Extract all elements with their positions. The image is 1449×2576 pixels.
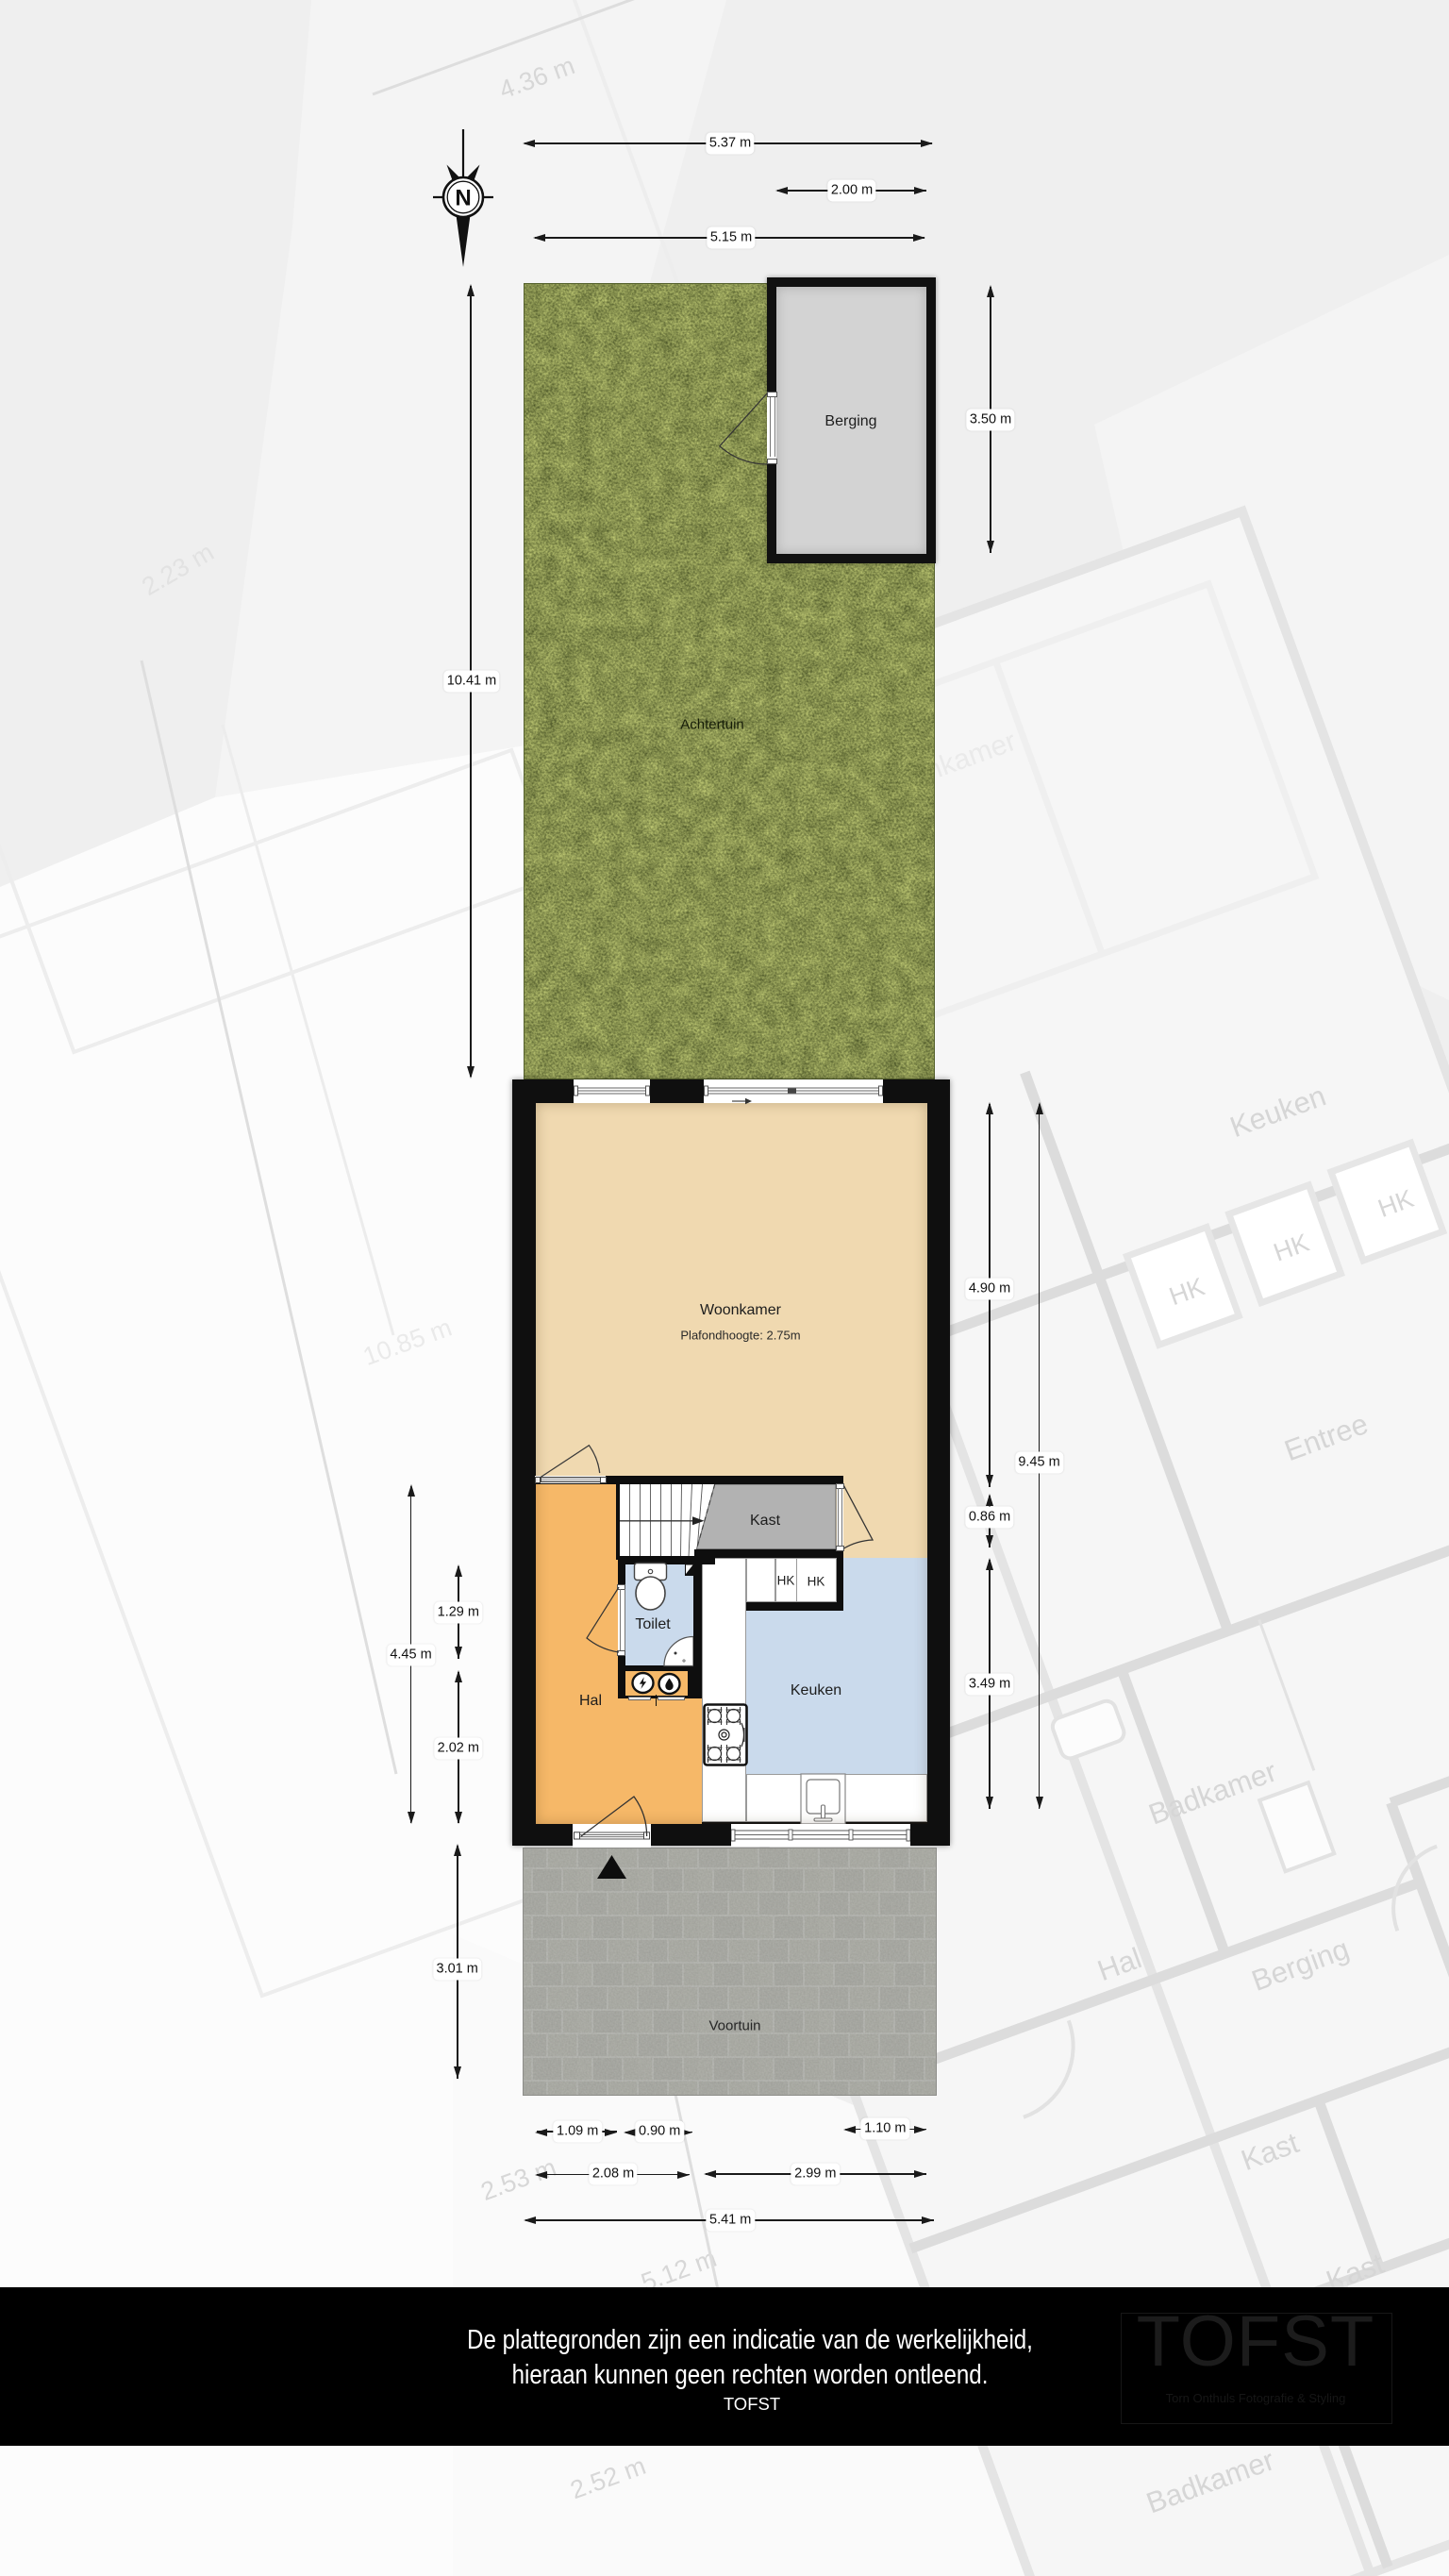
svg-text:N: N <box>455 186 471 211</box>
